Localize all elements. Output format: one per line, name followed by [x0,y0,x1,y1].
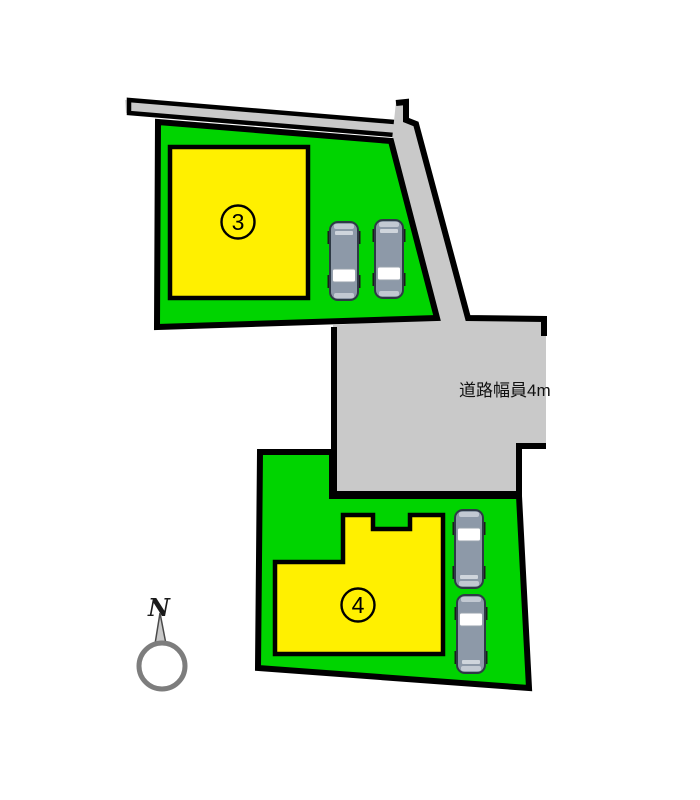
car-windshield [458,528,481,541]
site-plan-stage: 3 4 [0,0,700,800]
lot4-car-2 [455,595,488,673]
car-rear-window [460,575,478,579]
lot3-car-2 [373,220,406,298]
car-bumper [459,512,479,517]
lot3-number: 3 [232,209,245,235]
car-windshield [460,613,483,626]
car-rear-window [380,229,398,233]
car-bumper [379,222,399,227]
site-plan-svg: 3 4 [0,0,700,800]
car-windshield [333,269,356,282]
car-bumper [461,597,481,602]
lot3-car-1 [328,222,361,300]
car-bumper [459,581,479,586]
compass-ring-icon [139,643,185,689]
car-bumper [461,666,481,671]
lot4-car-1 [453,510,486,588]
car-rear-window [462,660,480,664]
road-width-label: 道路幅員4m [459,381,551,400]
car-bumper [334,293,354,298]
car-rear-window [335,231,353,235]
car-windshield [378,267,401,280]
car-bumper [334,224,354,229]
lot4-number: 4 [352,592,365,618]
car-bumper [379,291,399,296]
